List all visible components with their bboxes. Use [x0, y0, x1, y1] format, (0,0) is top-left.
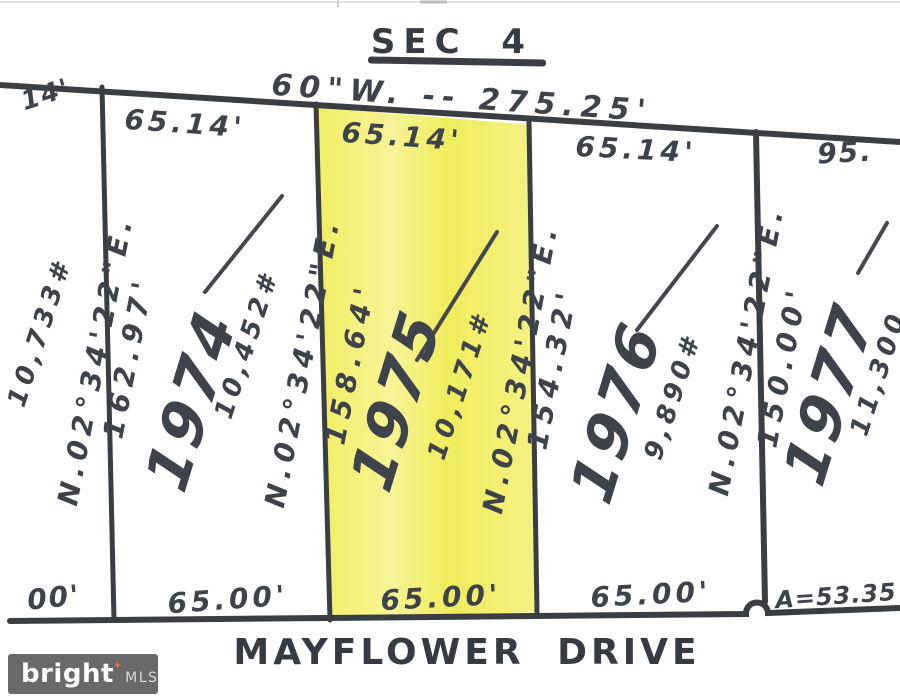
- edge-cut-dim-top-right: 95.: [817, 138, 874, 169]
- tally-slash-1977: [858, 223, 887, 273]
- dim-rear-lot-1975: 65.14': [341, 119, 464, 155]
- section-title: SEC 4: [371, 25, 533, 59]
- tally-slash-1976: [637, 226, 717, 330]
- plat-map: SEC 4 60"W. -- 275.25' 14' 95. 65.14' 65…: [0, 0, 900, 696]
- street-name: MAYFLOWER DRIVE: [233, 635, 700, 671]
- brightmls-brand-text: bright: [21, 654, 114, 694]
- dim-front-lot-1976: 65.00': [590, 578, 712, 612]
- dim-rear-lot-1974: 65.14': [124, 106, 247, 142]
- brightmls-watermark: bright✦MLS: [8, 654, 158, 694]
- brightmls-org-text: MLS: [125, 670, 158, 686]
- dim-rear-lot-1976: 65.14': [575, 133, 697, 167]
- edge-cut-dim-bottom-left: 00': [26, 581, 82, 614]
- dim-front-lot-1974: 65.00': [167, 582, 290, 618]
- brightmls-spark-icon: ✦: [113, 659, 122, 672]
- dim-front-lot-1975: 65.00': [380, 581, 502, 615]
